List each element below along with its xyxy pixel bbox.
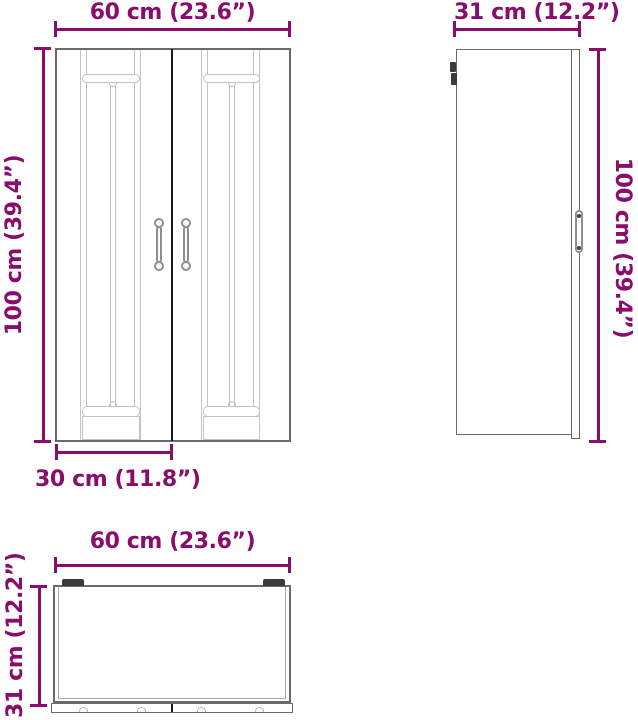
front-height-dimension-line [42, 49, 45, 441]
top-depth-dimension-line [38, 587, 41, 706]
top-cabinet-outline [53, 585, 291, 703]
side-height-dimension-line [597, 50, 600, 442]
dimension-tick [453, 21, 456, 37]
door-profile-notch [197, 707, 206, 712]
side-cabinet-body [456, 49, 573, 435]
door-split-line [171, 49, 173, 441]
front-wall-line [59, 698, 286, 699]
hinge-icon [263, 579, 285, 586]
hinge-icon [451, 73, 457, 85]
door-handle-top-mount [154, 218, 164, 228]
door-handle-bottom-mount [154, 261, 164, 271]
dimension-tick [288, 557, 291, 573]
side-wall-line [58, 587, 59, 699]
side-depth-dimension-label: 31 cm (12.2”) [454, 0, 580, 26]
front-width-dimension-line [55, 28, 290, 31]
door-handle-top-mount [181, 218, 191, 228]
door-bottom-panel [82, 416, 140, 440]
door-top-rail [82, 74, 140, 83]
side-height-dimension-label: 100 cm (39.4”) [609, 156, 635, 340]
top-depth-dimension-label: 31 cm (12.2”) [3, 558, 29, 718]
door-profile-notch [255, 707, 264, 712]
door-handle-bar [183, 226, 189, 263]
dimension-diagram: 60 cm (23.6”) 100 cm (39.4”) 30 cm (11.8… [0, 0, 638, 720]
door-top-rail [203, 74, 260, 83]
dimension-tick [288, 21, 291, 37]
front-width-dimension-label: 60 cm (23.6”) [55, 0, 290, 26]
door-stile-groove [253, 50, 260, 440]
handle-mount-dot [577, 214, 581, 218]
dimension-tick [55, 444, 58, 460]
top-width-dimension-label: 60 cm (23.6”) [55, 529, 290, 555]
door-mullion-groove [110, 86, 116, 407]
dimension-tick [30, 704, 47, 707]
dimension-tick [34, 440, 51, 443]
dimension-tick [589, 48, 606, 51]
door-profile-notch [137, 707, 146, 712]
dimension-tick [54, 21, 57, 37]
side-depth-dimension-line [454, 28, 580, 31]
door-stile-groove [80, 50, 87, 440]
dimension-tick [170, 444, 173, 460]
dimension-tick [34, 47, 51, 50]
dimension-tick [578, 21, 581, 37]
dimension-tick [30, 585, 47, 588]
door-stile-groove [201, 50, 208, 440]
door-handle-bar [156, 226, 162, 263]
door-width-dimension-line [56, 451, 172, 454]
door-split-line [171, 704, 173, 712]
door-stile-groove [134, 50, 141, 440]
door-profile-notch [79, 707, 88, 712]
hinge-icon [450, 62, 456, 72]
door-mullion-groove [229, 86, 235, 407]
door-handle-bottom-mount [181, 261, 191, 271]
door-width-dimension-label: 30 cm (11.8”) [35, 467, 195, 493]
handle-mount-dot [577, 246, 581, 250]
front-height-dimension-label: 100 cm (39.4”) [2, 153, 28, 337]
hinge-icon [62, 579, 84, 586]
door-bottom-panel [203, 416, 260, 440]
dimension-tick [589, 440, 606, 443]
top-width-dimension-line [55, 564, 290, 567]
side-wall-line [285, 587, 286, 699]
dimension-tick [54, 557, 57, 573]
